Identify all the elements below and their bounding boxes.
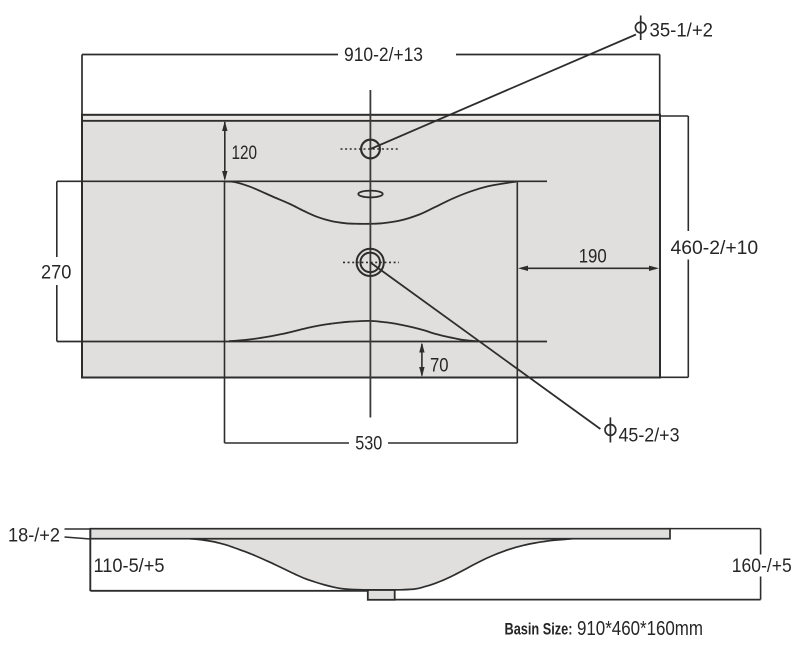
svg-text:70: 70 bbox=[430, 356, 449, 377]
svg-text:35-1/+2: 35-1/+2 bbox=[650, 20, 714, 42]
svg-text:45-2/+3: 45-2/+3 bbox=[619, 426, 680, 447]
svg-text:120: 120 bbox=[232, 143, 258, 164]
svg-text:Basin Size:: Basin Size: bbox=[505, 620, 573, 639]
svg-text:530: 530 bbox=[355, 434, 382, 455]
svg-text:18-/+2: 18-/+2 bbox=[8, 526, 60, 547]
svg-text:460-2/+10: 460-2/+10 bbox=[671, 238, 759, 259]
svg-text:190: 190 bbox=[579, 247, 607, 268]
svg-text:270: 270 bbox=[41, 263, 71, 284]
svg-text:910*460*160mm: 910*460*160mm bbox=[577, 617, 703, 640]
svg-text:160-/+5: 160-/+5 bbox=[732, 556, 792, 577]
svg-text:910-2/+13: 910-2/+13 bbox=[344, 45, 423, 66]
svg-text:110-5/+5: 110-5/+5 bbox=[94, 556, 165, 577]
